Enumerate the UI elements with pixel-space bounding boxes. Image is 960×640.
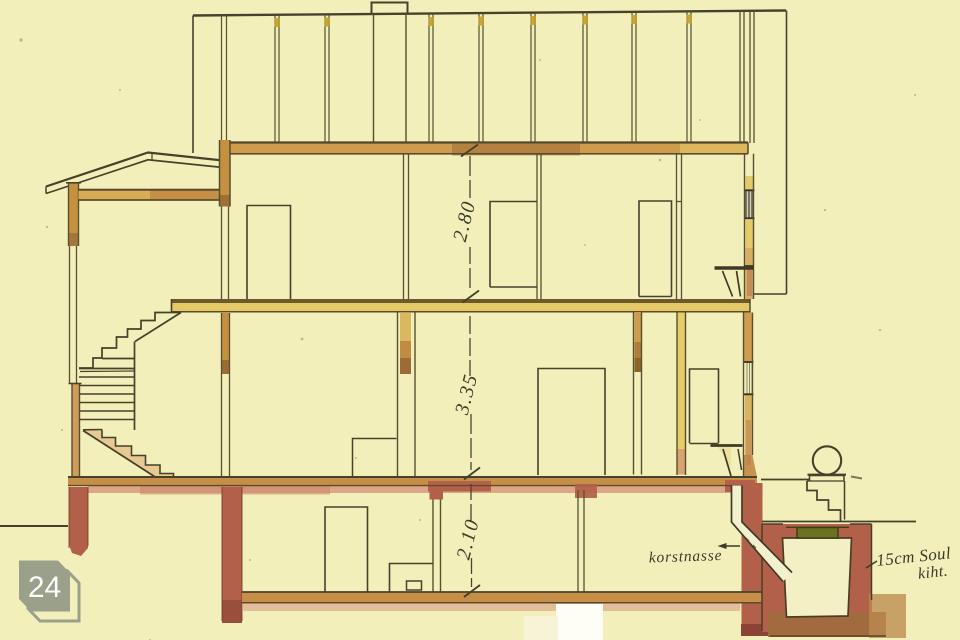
svg-text:korstnasse: korstnasse	[649, 547, 723, 567]
svg-text:kiht.: kiht.	[917, 563, 949, 583]
svg-text:24: 24	[28, 571, 61, 604]
